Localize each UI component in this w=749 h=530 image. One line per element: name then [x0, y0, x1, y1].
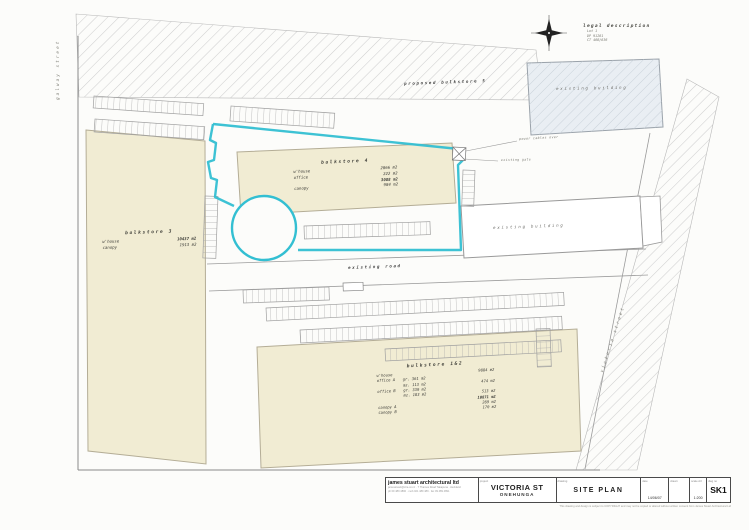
- area-value: 984 m2: [384, 182, 399, 188]
- existing-building-mid-wing: [640, 196, 662, 246]
- crossed-box: [452, 147, 466, 161]
- project-name: VICTORIA ST: [491, 483, 544, 492]
- project-suburb: ONEHUNGA: [500, 492, 535, 497]
- drawing-title: SITE PLAN: [573, 487, 623, 494]
- bulkstore3-shape: [86, 130, 206, 464]
- galway-street-label: galway street: [56, 40, 61, 100]
- weighbridge-box: [343, 282, 363, 291]
- bulkstore12-schedule: bulkstore 1&2 w'house9884 m2 office Agr.…: [376, 360, 496, 416]
- drawn-cell: drawn: [668, 478, 689, 502]
- firm-cell: james stuart architectural ltd jamesstua…: [386, 478, 478, 502]
- existing-building-top-shape: [527, 59, 663, 135]
- area-label: canopy: [294, 186, 309, 192]
- area-label: canopy: [102, 244, 117, 250]
- sheet-number-label: dwg no: [708, 479, 717, 483]
- parking-row: [203, 196, 218, 258]
- project-label: project: [480, 479, 488, 483]
- drawing-label: drawing: [558, 479, 568, 483]
- parking-row: [93, 96, 204, 116]
- victoria-street-hatch-area: [576, 79, 719, 470]
- scale-cell: scale A3 1:200: [689, 478, 706, 502]
- turning-circle: [232, 196, 296, 260]
- date-value: 14/06/07: [648, 496, 662, 500]
- parking-row: [536, 329, 551, 367]
- drawing-cell: drawing SITE PLAN: [556, 478, 641, 502]
- drawn-label: drawn: [670, 479, 678, 483]
- area-value: 1913 m2: [180, 242, 197, 248]
- legal-ct: CT 46B/836: [587, 38, 650, 43]
- parking-row: [230, 106, 335, 128]
- date-cell: date 14/06/07: [640, 478, 668, 502]
- firm-contact-line: ph 09 489 4890 · mob 021 489 489 · fax 0…: [388, 490, 476, 494]
- sheet-number: SK1: [710, 485, 727, 495]
- date-label: date: [642, 479, 647, 483]
- title-block: james stuart architectural ltd jamesstua…: [385, 477, 731, 503]
- parking-row: [243, 287, 329, 303]
- site-boundary-teal-west: [208, 124, 234, 206]
- area-label: office: [294, 174, 309, 180]
- copyright-note: This drawing and design is subject to CO…: [515, 505, 731, 508]
- parking-row: [304, 222, 430, 239]
- bulkstore4-schedule: bulkstore 4 w'house2866 m2 office222 m2 …: [293, 157, 398, 192]
- top-hatch-area: [76, 14, 542, 100]
- leader-line: [466, 141, 517, 151]
- project-cell: project VICTORIA ST ONEHUNGA: [478, 478, 556, 502]
- leader-line: [464, 159, 498, 161]
- north-arrow-icon: [531, 15, 567, 51]
- scale-label: scale A3: [691, 479, 702, 483]
- scale-value: 1:200: [694, 496, 703, 500]
- site-plan-sheet: galway street victoria street legal desc…: [0, 0, 749, 530]
- sheet-number-cell: dwg no SK1: [706, 478, 730, 502]
- existing-gate-note: existing gate: [501, 157, 531, 162]
- parking-row: [462, 170, 475, 206]
- legal-description: legal description Lot 1 DP 91281 CT 46B/…: [583, 24, 650, 43]
- bulkstore3-schedule: bulkstore 3 w'house10437 m2 canopy1913 m…: [102, 229, 197, 251]
